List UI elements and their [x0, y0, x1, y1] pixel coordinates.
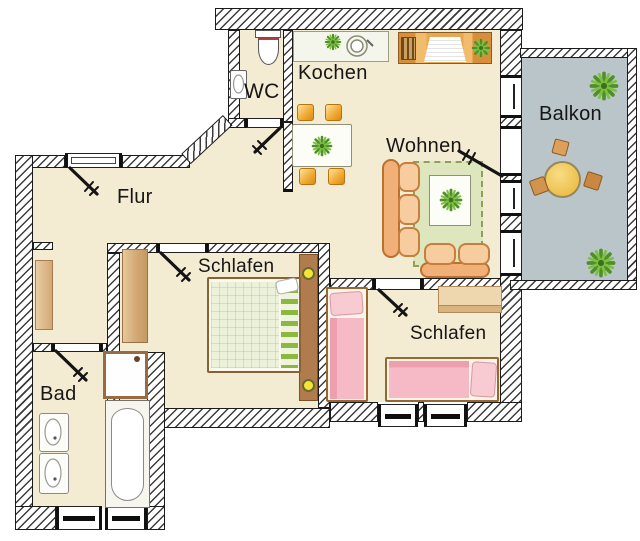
chair-icon: [328, 168, 345, 185]
hall-floor: [33, 122, 283, 243]
bedroom-sideboard-band-icon: [438, 305, 502, 313]
bedroom-right-door-opening: [373, 278, 423, 290]
room-label-wohnen: Wohnen: [386, 135, 462, 158]
shower-icon: [103, 351, 148, 399]
sofa-cushion-icon: [398, 162, 420, 192]
room-label-kochen: Kochen: [298, 62, 368, 85]
tv-icon: [424, 37, 466, 62]
wash-basin-icon: [39, 453, 69, 494]
balcony-door-opening: [500, 126, 522, 176]
wall-bedroom-right-bottom-c: [467, 402, 522, 422]
basket-icon: [401, 37, 416, 60]
coffee-table-icon: [429, 175, 471, 226]
bath-window-2: [105, 506, 147, 530]
hall-cabinet-icon: [35, 260, 53, 330]
sofa-cushion-icon: [398, 194, 420, 225]
wall-bath-bottom-b: [147, 506, 165, 530]
wall-balcony-right: [627, 48, 637, 290]
wall-wc-right: [283, 30, 293, 122]
wall-top: [215, 8, 523, 30]
chair-icon: [325, 104, 342, 121]
pillow-icon: [470, 361, 497, 398]
wall-left-outer: [15, 155, 33, 530]
wall-balcony-top: [520, 48, 637, 58]
pillow-icon: [329, 291, 364, 316]
bedside-lamp-icon: [302, 379, 315, 392]
wash-basin-icon: [39, 413, 69, 452]
room-label-bad: Bad: [40, 383, 77, 406]
balcony-table-icon: [544, 161, 581, 198]
kitchen-counter-icon: [293, 31, 389, 62]
wardrobe-icon: [122, 249, 148, 343]
room-label-flur: Flur: [117, 186, 153, 209]
passage-floor: [283, 192, 293, 243]
bath-window-1: [56, 506, 102, 530]
bed-blanket-icon: [389, 361, 469, 398]
bedroom-left-door-opening: [157, 243, 208, 253]
sofa-cushion-icon: [424, 243, 456, 265]
shower-drain-icon: [134, 356, 140, 362]
wall-bedroom-left-bottom: [160, 408, 330, 428]
room-label-schlafen-right: Schlafen: [410, 323, 486, 345]
sofa-cushion-icon: [458, 243, 490, 265]
bed-blanket-icon: [211, 282, 279, 368]
bed-blanket-icon: [330, 318, 364, 399]
bedroom-right-window-2: [424, 404, 467, 427]
sofa-cushion-icon: [398, 227, 420, 257]
wall-bath-bottom-a: [15, 506, 56, 530]
floor-plan: Flur WC Kochen Wohnen Balkon Schlafen Sc…: [0, 0, 640, 541]
chair-icon: [297, 104, 314, 121]
living-window-1: [500, 75, 522, 118]
wall-hall-top-right: [122, 155, 190, 168]
bed-stripes-icon: [281, 288, 298, 368]
wc-door-opening: [245, 118, 283, 128]
living-window-2: [500, 180, 522, 216]
living-window-3: [500, 230, 522, 276]
room-label-wc: WC: [244, 80, 280, 104]
wall-bedroom-right-bottom-a: [330, 402, 378, 422]
bathtub-inner-icon: [111, 408, 144, 501]
wall-hall-stub: [33, 242, 53, 250]
wall-balcony-bottom: [510, 280, 637, 290]
room-label-balkon: Balkon: [539, 103, 602, 126]
toilet-tank-icon: [255, 30, 281, 38]
chair-icon: [299, 168, 316, 185]
entrance-door-opening: [65, 153, 122, 168]
wall-bedroom-left-top-b: [208, 243, 330, 253]
bath-door-opening: [52, 343, 102, 352]
bedside-lamp-icon: [302, 267, 315, 280]
bedroom-right-window-1: [378, 404, 418, 427]
room-label-schlafen-left: Schlafen: [198, 256, 274, 278]
dining-table-icon: [292, 124, 352, 167]
wall-bath-top-a: [33, 343, 52, 352]
